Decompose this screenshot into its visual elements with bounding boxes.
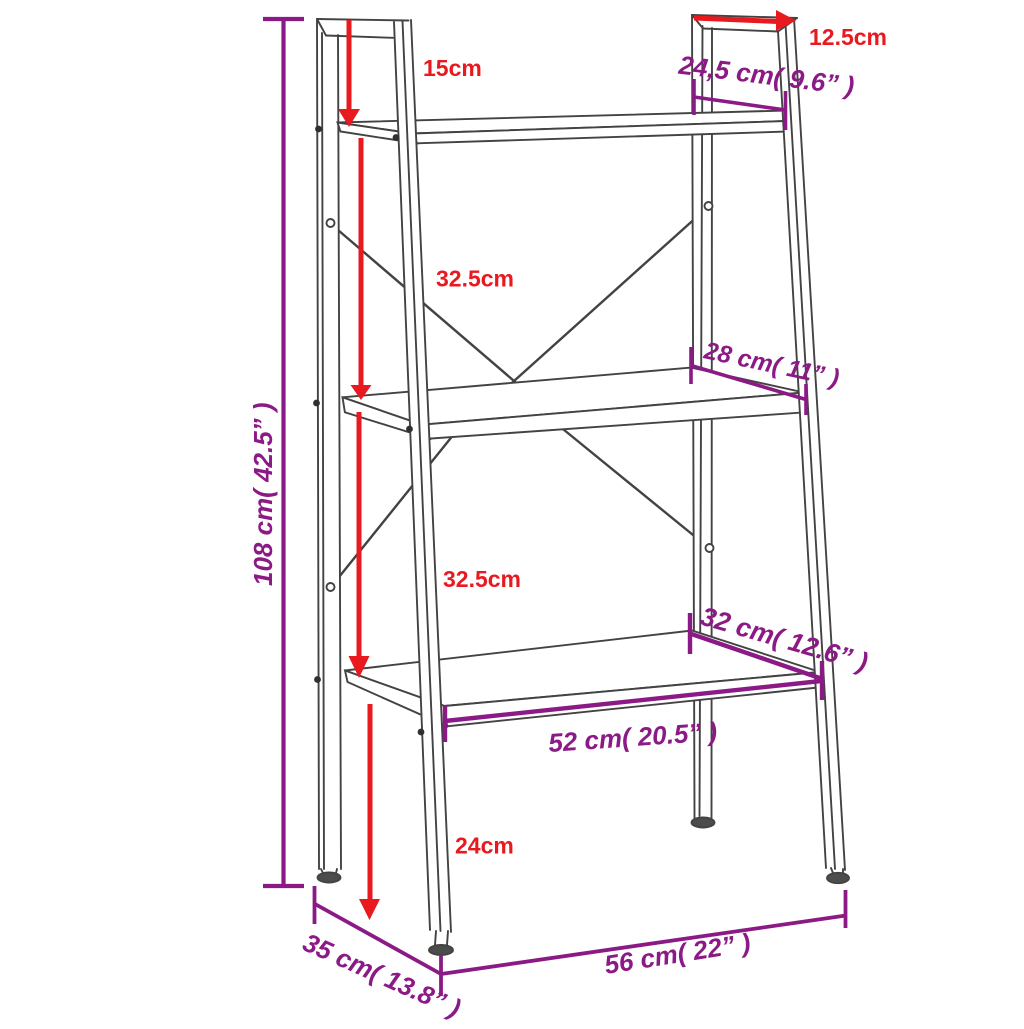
svg-text:32.5cm: 32.5cm <box>436 266 514 292</box>
svg-text:12.5cm: 12.5cm <box>809 24 887 50</box>
svg-text:15cm: 15cm <box>423 55 482 81</box>
svg-text:32.5cm: 32.5cm <box>443 566 521 592</box>
svg-text:24cm: 24cm <box>455 833 514 859</box>
svg-text:108 cm( 42.5” ): 108 cm( 42.5” ) <box>248 402 278 586</box>
